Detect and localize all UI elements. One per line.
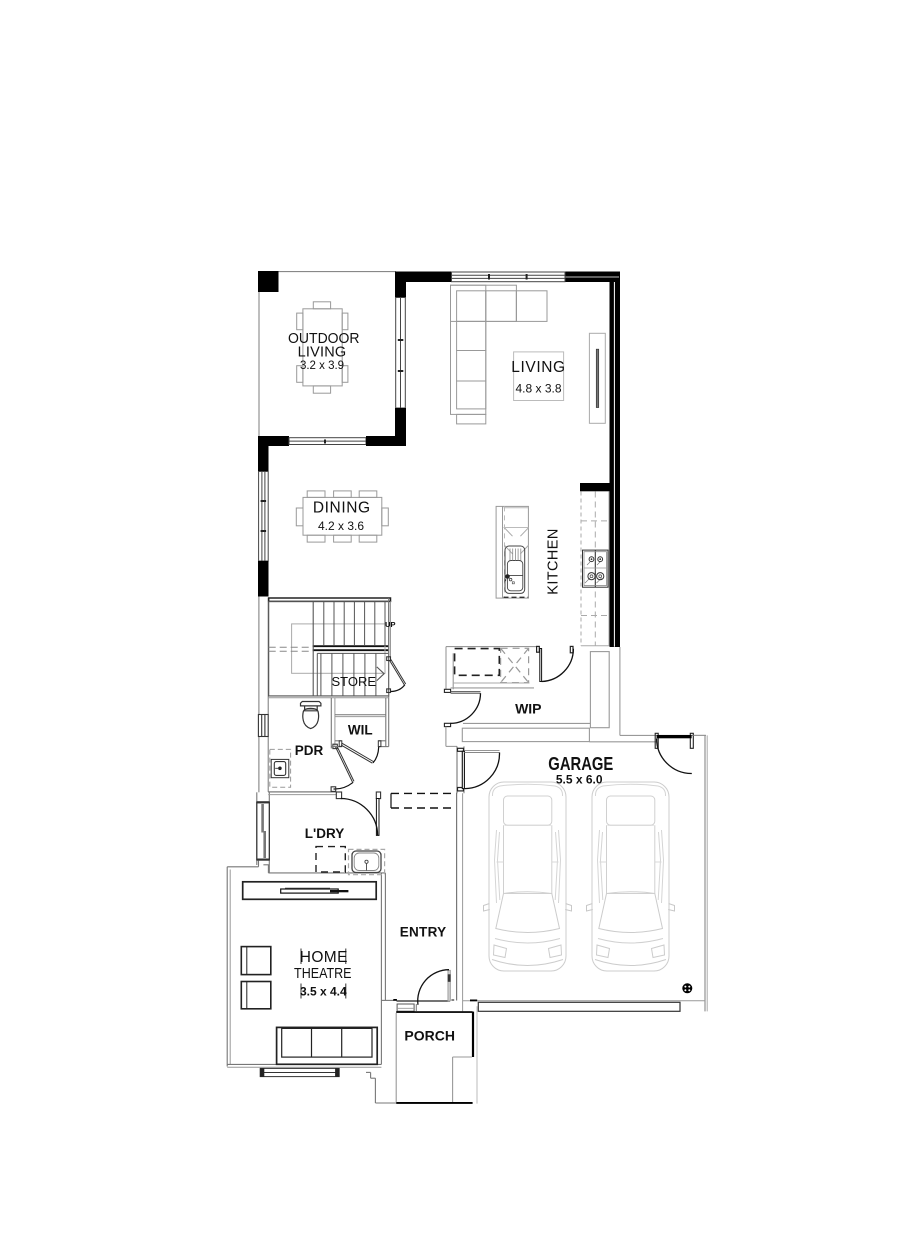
svg-text:UP: UP [385, 620, 395, 629]
svg-text:STORE: STORE [332, 674, 377, 689]
svg-text:LIVING: LIVING [298, 345, 347, 361]
svg-text:GARAGE: GARAGE [548, 754, 613, 774]
svg-text:ENTRY: ENTRY [400, 924, 447, 939]
svg-text:PORCH: PORCH [404, 1028, 455, 1044]
svg-text:L'DRY: L'DRY [305, 826, 344, 841]
svg-text:KITCHEN: KITCHEN [546, 528, 562, 594]
svg-text:PDR: PDR [295, 743, 324, 758]
svg-text:THEATRE: THEATRE [294, 965, 352, 982]
svg-text:WIP: WIP [515, 701, 541, 717]
svg-text:3.2 x 3.9: 3.2 x 3.9 [300, 360, 344, 372]
svg-text:4.2 x 3.6: 4.2 x 3.6 [318, 519, 364, 533]
svg-text:4.8 x 3.8: 4.8 x 3.8 [515, 382, 561, 396]
svg-text:LIVING: LIVING [511, 359, 565, 376]
svg-text:HOME: HOME [300, 949, 348, 966]
svg-text:DINING: DINING [313, 500, 371, 517]
svg-text:3.5 x 4.4: 3.5 x 4.4 [300, 985, 347, 999]
svg-text:WIL: WIL [348, 722, 373, 737]
svg-text:5.5 x 6.0: 5.5 x 6.0 [556, 772, 603, 786]
